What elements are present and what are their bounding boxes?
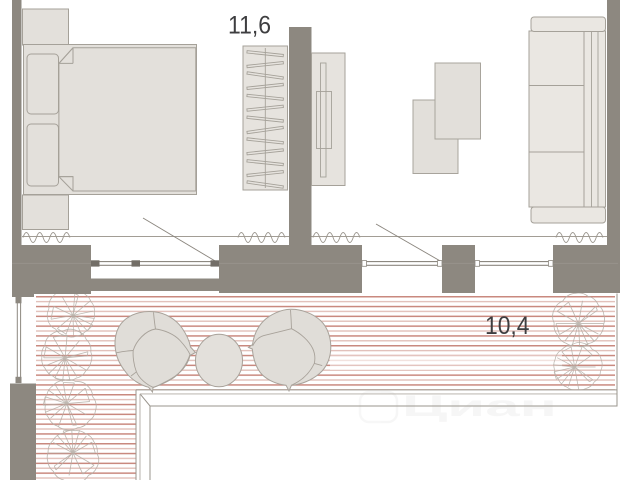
svg-text:10,4: 10,4 xyxy=(485,312,530,340)
svg-text:11,6: 11,6 xyxy=(228,11,271,39)
